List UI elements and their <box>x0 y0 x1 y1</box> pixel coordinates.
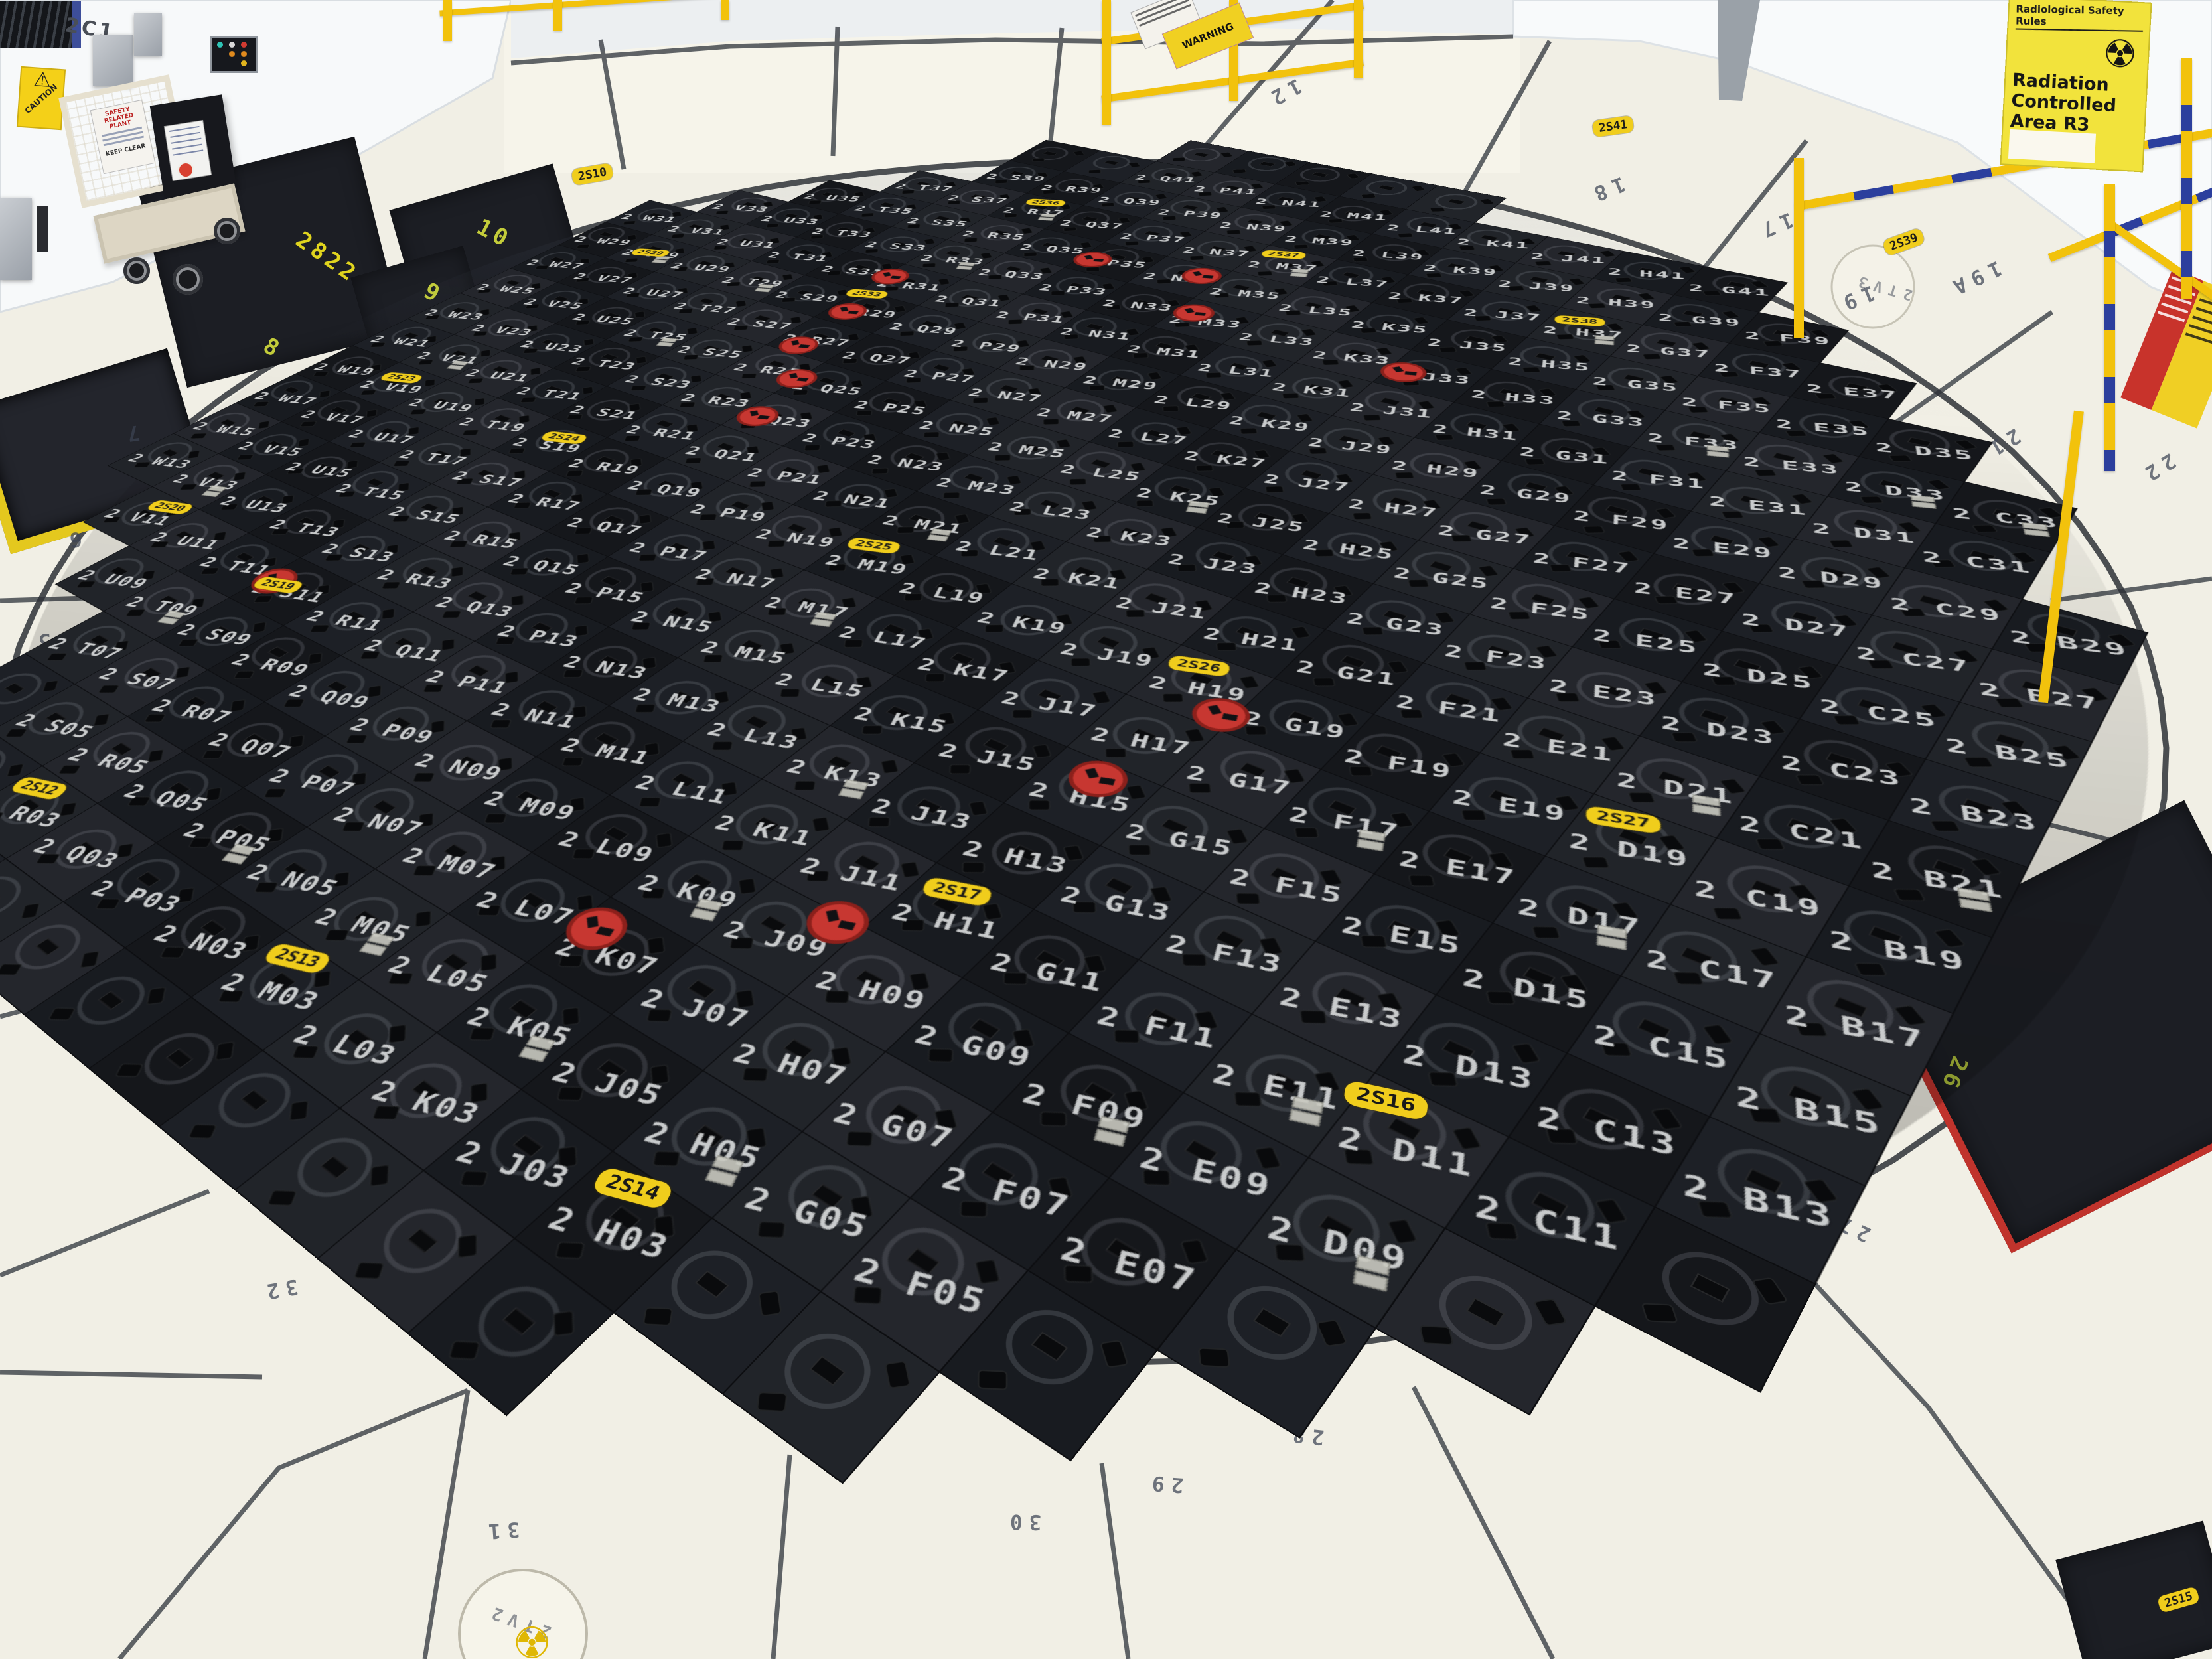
tile-fitting <box>1412 317 1430 325</box>
railing-post <box>1354 0 1363 78</box>
tile-fitting <box>484 814 507 824</box>
tile-fitting <box>943 492 960 499</box>
tile-fitting <box>1972 525 1998 532</box>
railing-leg <box>1794 158 1804 338</box>
floor-panel-number: 31 <box>481 1517 521 1544</box>
tile-fitting <box>1712 908 1743 920</box>
fuel-channel-plug <box>1175 146 1227 164</box>
tile-fitting <box>1721 511 1745 518</box>
tile-fitting <box>1198 1347 1230 1368</box>
tile-fitting <box>647 936 666 954</box>
tile-fitting <box>98 685 119 693</box>
railing-post <box>2181 58 2192 299</box>
plug-keyhole <box>98 991 124 1010</box>
tile-fitting <box>1195 465 1214 472</box>
wall-phone-box <box>134 13 162 56</box>
tile-fitting <box>638 797 661 807</box>
tile-fitting <box>1102 405 1118 413</box>
indicator-lamp <box>217 42 223 48</box>
plug-keyhole <box>1447 199 1465 205</box>
channel-sticker-pair <box>1037 214 1056 222</box>
railing-post <box>721 0 729 20</box>
tile-fitting <box>1257 271 1273 276</box>
tile-fitting <box>749 481 766 488</box>
plug-keyhole <box>4 683 25 695</box>
tile-fitting <box>1419 1325 1454 1346</box>
floor-panel-number: 7 <box>119 420 141 447</box>
wall-control-panel <box>210 36 258 73</box>
tile-fitting <box>289 1100 309 1121</box>
tile-fitting <box>1301 328 1317 336</box>
wall-junction-box <box>93 35 133 86</box>
channel-sticker-pair <box>1289 1096 1324 1129</box>
plug-keyhole <box>1031 1332 1068 1362</box>
channel-label: 2 S13 <box>317 541 399 565</box>
tile-fitting <box>458 1234 478 1258</box>
channel-label: 2 U11 <box>145 530 224 553</box>
tile-fitting <box>412 772 435 782</box>
channel-label: 2 L37 <box>1315 275 1390 289</box>
plug-keyhole <box>1042 151 1057 156</box>
tile-fitting <box>449 1340 480 1360</box>
tile-fitting <box>1854 963 1887 976</box>
tile-fitting <box>1088 169 1102 173</box>
channel-label: 2 T13 <box>264 518 344 540</box>
tile-fitting <box>756 1392 787 1413</box>
tile-fitting <box>1361 194 1376 198</box>
wall-box-low <box>0 198 32 280</box>
tile-fitting <box>1479 198 1495 204</box>
channel-label: 2 M21 <box>879 513 966 537</box>
plug-keyhole <box>407 1228 439 1254</box>
channel-label: 2 K37 <box>1386 291 1464 306</box>
tile-fitting <box>1346 173 1361 179</box>
tile-fitting <box>950 764 971 774</box>
plug-keyhole <box>35 938 60 956</box>
channel-sticker-pair <box>1707 445 1729 459</box>
channel-label: 2 M35 <box>1207 287 1282 301</box>
tile-fitting <box>462 430 479 436</box>
tile-fitting <box>1531 926 1560 939</box>
channel-label: 2 L35 <box>1276 303 1353 318</box>
tile-fitting <box>1254 1146 1282 1169</box>
tile-fitting <box>1749 947 1781 966</box>
tile-fitting <box>480 954 497 972</box>
tile-fitting <box>1397 233 1414 238</box>
tile-fitting <box>263 788 287 798</box>
plug-keyhole <box>320 1155 350 1179</box>
tile-fitting <box>974 1259 1001 1285</box>
plug-keyhole <box>0 889 1 905</box>
channel-label: 2 M19 <box>821 553 911 579</box>
tile-fitting <box>146 987 166 1005</box>
plug-keyhole <box>166 1048 193 1069</box>
channel-label: 2 S05 <box>9 711 99 743</box>
channel-sticker-pair <box>1186 500 1210 514</box>
tile-fitting <box>354 1262 385 1280</box>
tile-fitting <box>1147 372 1163 380</box>
tile-fitting <box>0 964 23 975</box>
plug-keyhole <box>502 1307 536 1336</box>
radiation-trefoil-icon: ☢ <box>2013 27 2138 76</box>
tile-fitting <box>884 1360 911 1389</box>
tile-fitting <box>758 1290 782 1317</box>
tile-fitting <box>1614 277 1633 283</box>
tile-fitting <box>625 258 638 263</box>
channel-sticker-pair <box>1597 924 1627 952</box>
tile-fitting <box>642 1307 673 1327</box>
tile-fitting <box>313 970 331 988</box>
tile-fitting <box>1352 512 1372 520</box>
railing-post <box>553 0 562 31</box>
tile-fitting <box>236 454 254 460</box>
tile-fitting <box>565 470 583 476</box>
tile-fitting <box>1582 526 1605 533</box>
tile-fitting <box>1032 158 1045 162</box>
plug-keyhole <box>1690 1273 1730 1303</box>
channel-sticker-pair <box>1356 829 1386 853</box>
tile-fitting <box>1100 1340 1129 1368</box>
plug-keyhole <box>1104 160 1120 165</box>
tile-fitting <box>871 468 889 474</box>
pile-cap-room: 2822810926 2 W312 W292 W272 W252 W232 W2… <box>0 0 2212 1659</box>
trolley-wheel <box>214 218 240 244</box>
radiation-sign-blank-panel <box>2008 129 2096 163</box>
channel-label: 2 Q33 <box>976 268 1047 282</box>
fuel-channel-plug <box>64 968 158 1035</box>
channel-label: 2 V27 <box>570 272 636 285</box>
tile-fitting <box>576 244 590 248</box>
channel-label: 2 P13 <box>492 623 583 652</box>
plug-keyhole <box>1378 185 1395 190</box>
tile-fitting <box>1086 267 1100 272</box>
indicator-lamp <box>229 51 235 57</box>
tile-fitting <box>1511 1043 1542 1064</box>
indicator-lamp <box>241 42 247 48</box>
railing-post <box>2104 184 2115 471</box>
plug-keyhole <box>1253 1307 1291 1337</box>
plug-keyhole <box>1259 161 1276 167</box>
tile-fitting <box>1128 162 1141 167</box>
tile-fitting <box>42 680 59 692</box>
radiation-controlled-area-sign: Radiological Safety Rules ☢ Radiation Co… <box>2002 0 2151 171</box>
plug-keyhole <box>809 1356 846 1386</box>
tile-fitting <box>861 213 874 217</box>
tile-fitting <box>190 433 208 439</box>
red-button <box>179 163 192 177</box>
plug-keyhole <box>1466 1297 1505 1327</box>
indicator-lamp <box>229 42 235 48</box>
railing-post <box>1102 0 1111 125</box>
fuel-channel-plug <box>131 1023 228 1096</box>
tile-fitting <box>451 567 463 577</box>
tile-fitting <box>994 455 1011 461</box>
tile-fitting <box>1533 1298 1568 1326</box>
plug-keyhole <box>695 1271 729 1299</box>
channel-sticker-pair <box>1290 269 1309 278</box>
tile-fitting <box>6 764 24 777</box>
tile-fitting <box>1293 244 1309 249</box>
channel-label: 2 N17 <box>690 567 779 593</box>
plug-keyhole <box>1193 152 1209 157</box>
tile-fitting <box>349 442 366 448</box>
channel-label: 2 N19 <box>751 527 838 551</box>
indicator-lamp <box>241 60 247 66</box>
tile-fitting <box>1261 360 1278 368</box>
tile-fitting <box>252 622 267 633</box>
channel-label: 2 N31 <box>1057 326 1134 342</box>
fuel-channel-plug <box>1649 1238 1771 1340</box>
tile-fitting <box>187 450 200 459</box>
hatch-trefoil-icon: ☢ <box>512 1618 552 1659</box>
tile-fitting <box>115 1064 143 1078</box>
trolley-wheel <box>173 264 203 295</box>
tile-fitting <box>638 514 652 524</box>
trolley-wheel <box>123 257 150 284</box>
tile-fitting <box>922 263 936 268</box>
channel-sticker-pair <box>1595 335 1615 346</box>
tile-fitting <box>300 421 317 427</box>
tile-fitting <box>1220 152 1233 157</box>
tile-fitting <box>1235 893 1261 904</box>
tile-fitting <box>978 1370 1007 1390</box>
tile-fitting <box>986 417 1001 425</box>
plug-keyhole <box>1311 172 1328 177</box>
tile-fitting <box>721 840 745 851</box>
wall-cable <box>37 206 48 252</box>
tile-fitting <box>766 224 779 228</box>
tile-fitting <box>388 1024 406 1043</box>
tile-fitting <box>1023 252 1037 257</box>
indicator-lamp <box>241 51 247 57</box>
tile-fitting <box>553 1310 574 1336</box>
tile-fitting <box>1172 157 1185 161</box>
tile-fitting <box>1232 169 1246 173</box>
tile-fitting <box>671 234 685 238</box>
tile-fitting <box>1641 1303 1678 1323</box>
railing-post <box>443 0 452 41</box>
tile-fitting <box>415 910 431 928</box>
tile-fitting <box>1295 181 1310 185</box>
fuel-channel-plug <box>1424 1262 1547 1365</box>
tile-fitting <box>48 1007 76 1020</box>
channel-sticker-pair <box>1911 495 1937 510</box>
plug-keyhole <box>240 1089 269 1111</box>
channel-label: 2 J39 <box>1497 279 1575 294</box>
channel-sticker-pair <box>1692 794 1720 818</box>
tile-fitting <box>1189 255 1205 260</box>
channel-label: 2 W27 <box>523 258 587 271</box>
tile-fitting <box>1828 540 1854 548</box>
tile-fitting <box>267 1190 297 1206</box>
tile-fitting <box>816 465 830 474</box>
caution-sign: ⚠ CAUTION <box>18 68 64 129</box>
radiation-sign-header: Radiological Safety Rules <box>2016 3 2144 31</box>
tile-fitting <box>1315 1319 1347 1347</box>
tile-fitting <box>794 781 816 791</box>
tile-fitting <box>1069 478 1086 485</box>
tile-fitting <box>215 1041 235 1060</box>
channel-label: 2 Q11 <box>358 637 448 666</box>
tile-fitting <box>1430 208 1445 212</box>
tile-fitting <box>370 1164 390 1187</box>
tile-fitting <box>188 1124 217 1139</box>
tile-fitting <box>1073 151 1085 156</box>
tile-fitting <box>1411 186 1426 192</box>
channel-sticker-pair <box>2022 522 2050 538</box>
channel-label: 2 T15 <box>331 482 409 503</box>
